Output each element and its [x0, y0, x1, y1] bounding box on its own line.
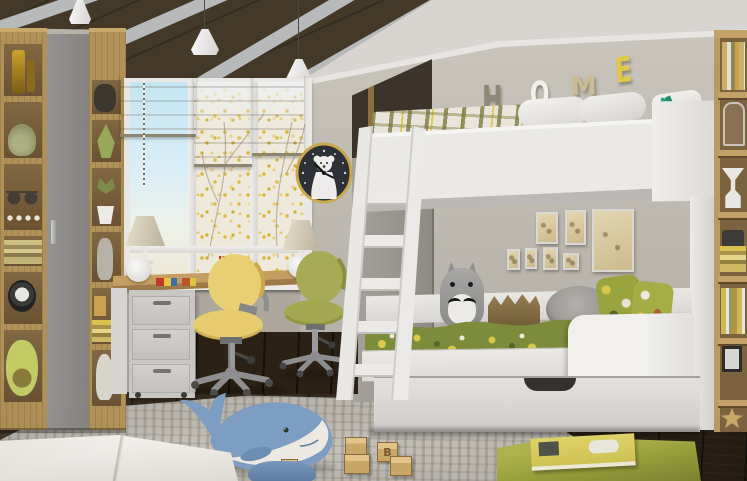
wardrobe-door [47, 34, 89, 430]
star-ornament [721, 408, 743, 428]
wardrobe-handle [51, 220, 56, 244]
pendant-lamp [64, 0, 94, 26]
toy-block [344, 454, 370, 474]
framed-sketch [592, 209, 634, 272]
book-stack [4, 240, 42, 264]
robot-figurines [27, 60, 35, 92]
whale-eye [284, 428, 289, 433]
photo-frame [722, 346, 742, 372]
desk-side-panel [111, 288, 127, 394]
picture-book [530, 433, 636, 470]
drawer-handle [153, 369, 171, 373]
bookshelf-right [714, 30, 747, 432]
pencil-cup [94, 296, 106, 316]
stars-plaque [4, 210, 42, 226]
bicycle-model [6, 180, 38, 206]
sphere-lamp [126, 257, 151, 282]
drawer [132, 364, 190, 393]
blue-cushion [248, 461, 316, 481]
drawer [132, 329, 190, 360]
shade-pull-cord [143, 80, 145, 188]
glass-dome [723, 102, 745, 146]
drawer-handle [153, 334, 171, 338]
frog-figurine [8, 124, 36, 156]
drawer-handle [153, 301, 171, 305]
bed-head-panel [652, 100, 714, 201]
kids-bedroom-scene: H O M E [0, 0, 747, 481]
drawer-handle-cutout [524, 378, 576, 391]
avocado-plush [6, 340, 38, 396]
roman-shade [194, 74, 252, 167]
shelf-column [0, 28, 47, 430]
alarm-clock [8, 280, 36, 312]
framed-sketch [563, 253, 579, 270]
book-stack [720, 246, 746, 272]
mustache [447, 297, 461, 309]
cake-stand [722, 168, 744, 208]
book-row [721, 288, 745, 334]
bunk-ladder [332, 120, 432, 404]
robot-figurines [12, 50, 25, 94]
shelf-unit-left [0, 26, 126, 432]
roman-shade [120, 74, 196, 137]
toy-block [390, 456, 412, 476]
framed-sketch [525, 248, 537, 269]
framed-sketch [543, 247, 558, 270]
bird-ornament [94, 84, 116, 112]
framed-sketch [507, 249, 520, 270]
pendant-lamp [190, 0, 220, 56]
drawer [132, 296, 190, 325]
wall-letter-e: E [614, 56, 633, 87]
book-row [722, 42, 745, 90]
